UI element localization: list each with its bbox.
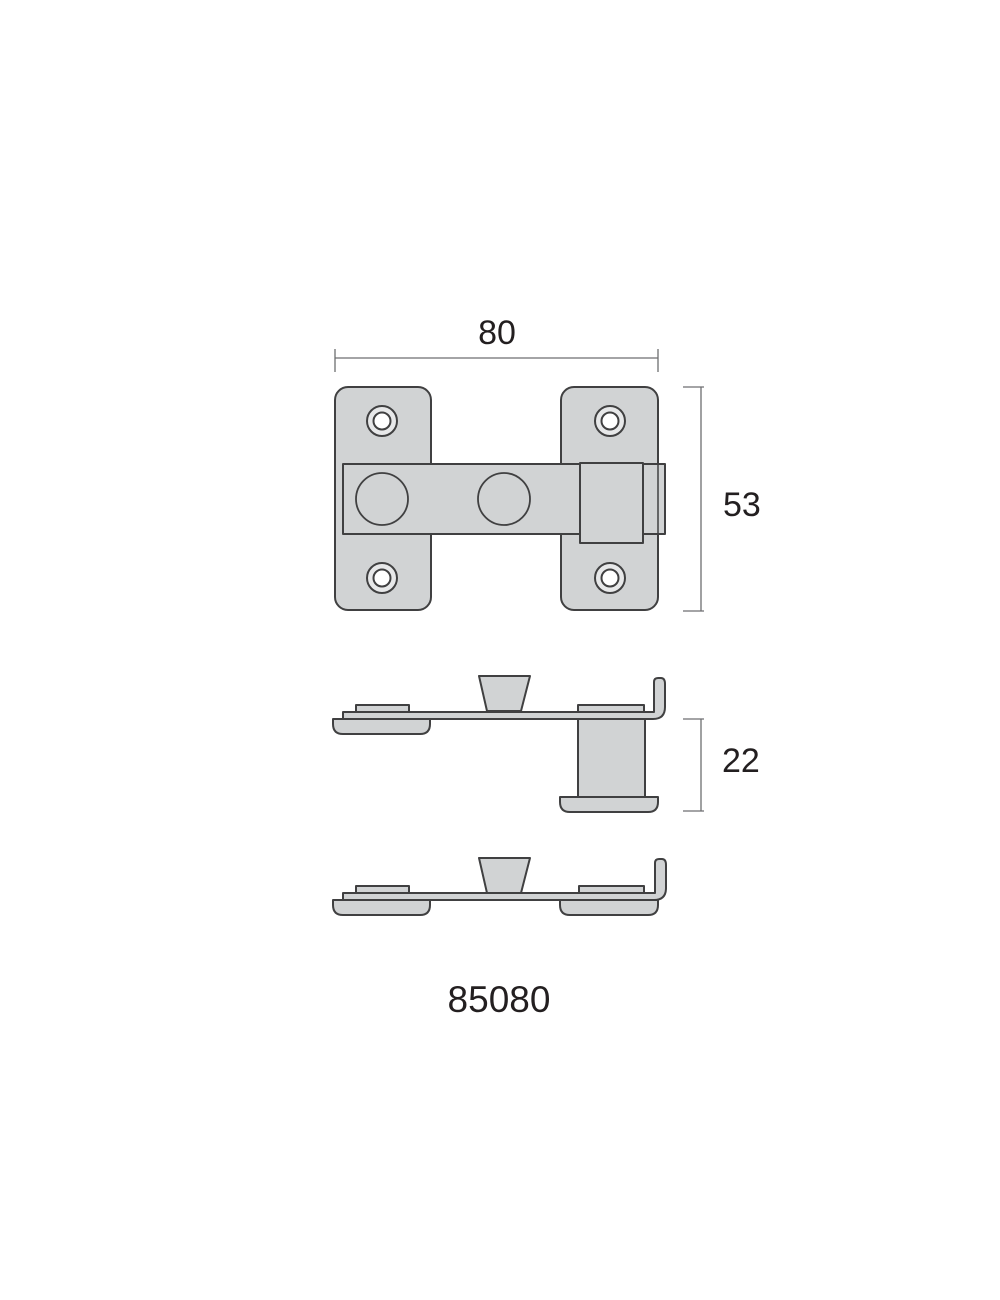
front-view: [335, 387, 665, 610]
technical-drawing-page: 80 53 22: [0, 0, 1000, 1300]
thumb-knob-profile: [479, 676, 530, 711]
screw-hole-bottom-right: [595, 563, 625, 593]
right-plate-profile-pad: [579, 886, 644, 893]
side-view-flat: [333, 858, 666, 915]
keeper-guide: [580, 463, 643, 543]
left-foot-profile: [333, 900, 430, 915]
side-view-projected: [333, 676, 665, 812]
dimension-depth: 22: [683, 719, 760, 811]
screw-hole-top-right: [595, 406, 625, 436]
latch-technical-drawing: 80 53 22: [0, 0, 1000, 1300]
dimension-height-value: 53: [723, 486, 761, 524]
bolt-knob-circle-right: [478, 473, 530, 525]
bolt-knob-circle-left: [356, 473, 408, 525]
screw-hole-center: [374, 413, 391, 430]
screw-hole-top-left: [367, 406, 397, 436]
keeper-foot-profile: [560, 797, 658, 812]
screw-hole-center: [602, 570, 619, 587]
thumb-knob-profile: [479, 858, 530, 893]
dimension-depth-value: 22: [722, 742, 760, 780]
product-code: 85080: [448, 979, 551, 1020]
screw-hole-center: [374, 570, 391, 587]
keeper-plate-profile-pad: [578, 705, 644, 712]
dimension-width-value: 80: [478, 314, 516, 352]
right-foot-profile: [560, 900, 658, 915]
left-plate-profile-pad: [356, 705, 409, 712]
screw-hole-center: [602, 413, 619, 430]
left-plate-profile-pad: [356, 886, 409, 893]
dimension-width: 80: [335, 314, 658, 372]
dimension-height: 53: [683, 387, 761, 611]
keeper-boss-profile: [578, 719, 645, 797]
left-foot-profile: [333, 719, 430, 734]
screw-hole-bottom-left: [367, 563, 397, 593]
